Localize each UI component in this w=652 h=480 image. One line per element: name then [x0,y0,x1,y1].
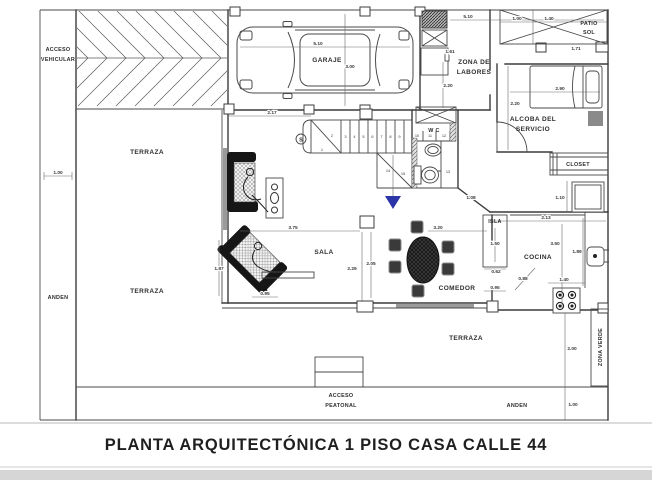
dim-comedor-fondo: 2.05 [366,261,376,267]
dim-terraza-fondo: 2.00 [567,346,577,352]
dim-cocina-ancho: 2.13 [541,215,551,221]
dim-garaje-fondo: 3.00 [345,64,355,70]
step-number: 1 [321,147,323,152]
entry-steps [315,357,363,387]
dim-labores-fondo: 2.20 [443,83,453,89]
room-label-comedor: COMEDOR [439,285,476,292]
dim-isla-largo: 1.50 [490,241,500,247]
window-sala-left [223,148,227,230]
room-label-sala: SALA [314,249,333,256]
room-label-anden-bottom: ANDEN [507,403,528,409]
room-label-anden-left: ANDEN [48,295,69,301]
dim-patio-izq: 1.00 [512,16,522,22]
step-number: 10 [415,133,420,138]
dim-cocina-fondo: 3.50 [550,241,560,247]
room-label-patio-sol-2: SOL [583,30,595,36]
dim-alcoba-fondo: 2.20 [510,101,520,107]
room-label-acceso-vehicular-2: VEHICULAR [41,57,75,63]
dimension-texts: 1.00 5.10 3.00 2.17 5.10 1.61 2.20 1.00 … [53,14,582,408]
dim-patio-alto: 1.71 [571,46,581,52]
dim-isla-ancho: 0.62 [491,269,501,275]
step-number: 14 [386,168,391,173]
floor-plan-drawing: 1.00 5.10 3.00 2.17 5.10 1.61 2.20 1.00 … [0,0,652,480]
dim-meson: 1.89 [572,249,582,255]
title-block: PLANTA ARQUITECTÓNICA 1 PISO CASA CALLE … [0,423,652,480]
dim-sala-muro: 1.87 [214,266,224,272]
step-number: 3 [344,134,346,139]
dining-table [407,237,439,283]
dim-anden-inf: 1.00 [568,402,578,408]
room-label-zona-labores-1: ZONA DE [458,59,490,66]
dim-nevera: 1.10 [555,195,565,201]
room-label-acceso-peatonal-2: PEATONAL [325,403,357,409]
wc-fixtures [412,107,456,188]
step-number: 4 [353,134,356,139]
room-label-wc: W C [428,128,439,134]
room-label-terraza-lower: TERRAZA [130,288,164,295]
kitchen-fixtures [483,182,609,313]
dim-labores-equipo: 1.61 [445,49,455,55]
living-room-furniture [216,152,314,296]
room-label-alcoba-2: SERVICIO [516,126,550,133]
step-number: 15 [401,171,405,176]
dim-anden-izq: 1.00 [53,170,63,176]
step-number: 6 [371,134,373,139]
laundry-fixtures [421,11,449,75]
plan-title: PLANTA ARQUITECTÓNICA 1 PISO CASA CALLE … [105,435,547,454]
dim-escalera-diag: 1.08 [466,195,476,201]
fridge [572,182,604,212]
dim-labores-ancho: 5.10 [463,14,473,20]
step-number: 8 [389,134,391,139]
dim-garaje-ancho: 5.10 [313,41,323,47]
dim-hall: 2.17 [267,110,277,116]
sofa-1 [227,152,268,212]
wc-toilet [422,167,439,183]
dim-comedor-ancho: 3.20 [433,225,443,231]
stove [553,288,580,313]
step-number: 9 [398,134,400,139]
window-comedor [396,304,474,308]
dim-sala-fondo: 2.29 [347,266,357,272]
nightstand [588,111,603,126]
room-label-cocina: COCINA [524,254,552,261]
dim-sala-ancho: 3.75 [288,225,298,231]
stair-start-symbol: S [299,138,303,144]
step-number: 13 [446,169,450,174]
dim-puerta-cocina: 0.88 [518,276,528,282]
dim-patio-der: 1.40 [544,16,554,22]
step-number: 2 [331,133,333,138]
patio-sol-shape [500,10,607,44]
service-bedroom-furniture [497,66,603,152]
room-label-terraza-back: TERRAZA [449,335,483,342]
step-number: 12 [442,133,446,138]
stair-direction-arrow [385,196,401,209]
step-number: 5 [362,134,364,139]
room-label-garaje: GARAJE [312,57,342,64]
step-number: 7 [380,134,382,139]
room-label-acceso-vehicular-1: ACCESO [46,47,71,53]
room-label-alcoba-1: ALCOBA DEL [510,116,556,123]
footer-bar [0,470,652,480]
room-label-patio-sol-1: PATIO [580,21,597,27]
floor-plan: 1.00 5.10 3.00 2.17 5.10 1.61 2.20 1.00 … [0,0,652,480]
dim-sala-paso: 0.95 [260,291,270,297]
staircase [296,109,458,209]
wc-toilet-tank [414,166,421,184]
room-label-terraza-upper: TERRAZA [130,149,164,156]
room-label-zona-verde: ZONA VERDE [598,328,604,366]
room-label-closet: CLOSET [566,162,590,168]
dim-alcoba-ancho: 2.90 [555,86,565,92]
dim-isla-paso: 0.95 [490,285,500,291]
room-label-zona-labores-2: LABORES [457,69,492,76]
room-label-acceso-peatonal-1: ACCESO [329,393,354,399]
room-label-isla: ISLA [488,219,501,225]
dim-estufa: 1.40 [559,277,569,283]
